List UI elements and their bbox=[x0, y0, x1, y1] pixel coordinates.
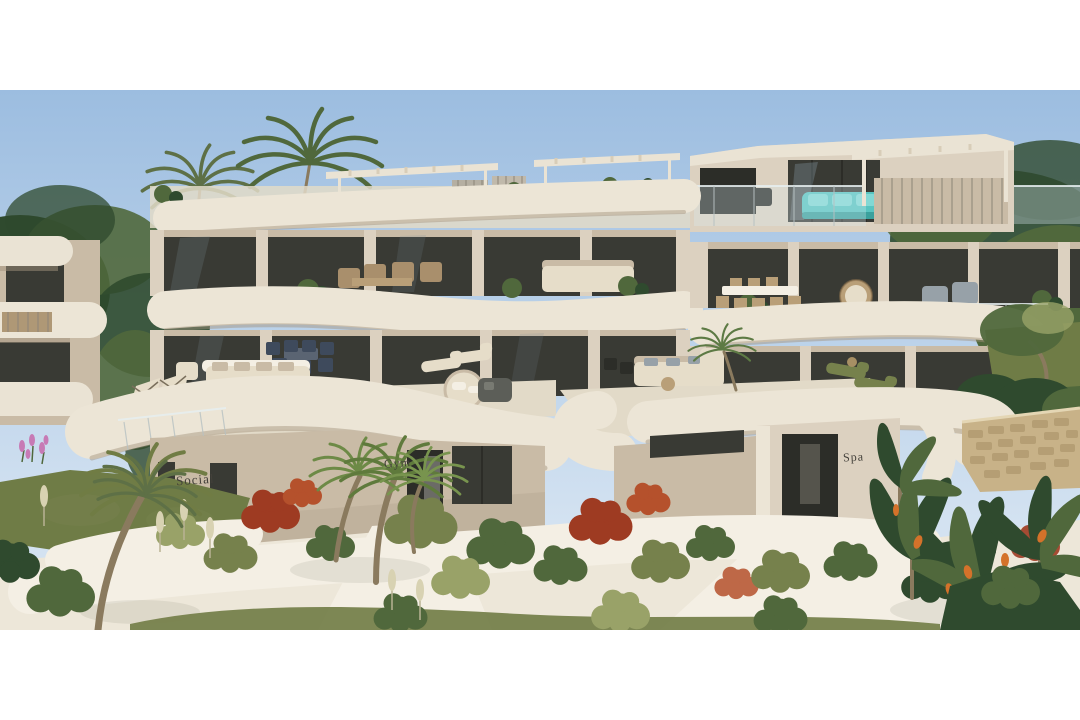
upper-floor-left bbox=[150, 230, 690, 340]
letterbox-frame: Social Gym Spa bbox=[0, 0, 1080, 720]
render-scene bbox=[0, 90, 1080, 630]
gym-sign: Gym bbox=[384, 455, 412, 472]
property-render-photo: Social Gym Spa bbox=[0, 90, 1080, 630]
spa-sign: Spa bbox=[843, 449, 865, 465]
stone-wall bbox=[962, 408, 1080, 492]
social-sign: Social bbox=[175, 471, 215, 490]
